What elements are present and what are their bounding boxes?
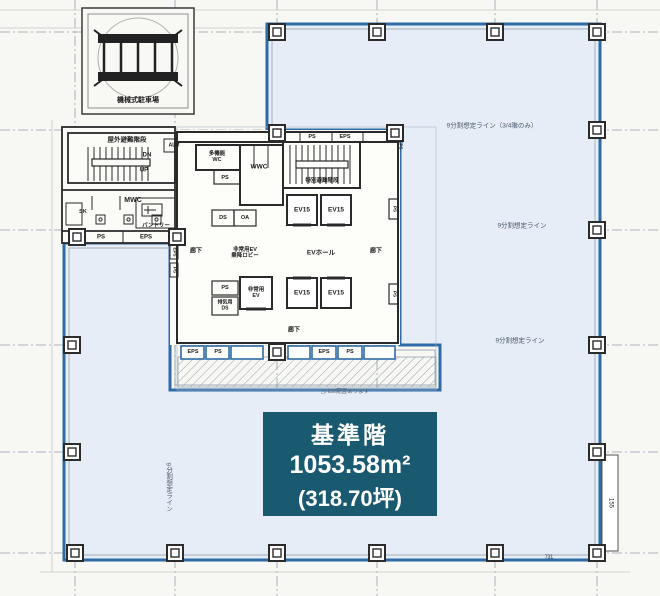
eps-right-top-label: EPS bbox=[398, 140, 403, 149]
stair-dn-label: DN bbox=[143, 153, 152, 160]
eps-bottomrow-label-2: EPS bbox=[318, 349, 329, 355]
hatch-note: △HD2配置あります bbox=[321, 389, 369, 395]
hatch-band bbox=[178, 357, 436, 387]
ps-right-label-2: PS bbox=[392, 291, 397, 297]
mwc-label: MWC bbox=[124, 197, 142, 205]
emergency-ev-lobby-label: 非常用EV 乗降ロビー bbox=[231, 247, 259, 259]
sk-label: SK bbox=[79, 209, 87, 215]
corridor-label-right: 廊下 bbox=[370, 249, 382, 256]
multifunction-wc-label: 多機能 WC bbox=[209, 151, 226, 163]
ps-core-top-label: PS bbox=[308, 134, 315, 140]
area-info-box: 基準階 1053.58m² (318.70坪) bbox=[263, 412, 437, 516]
ps-mfwc-label: PS bbox=[221, 175, 228, 181]
emergency-ev-label: 非常用 EV bbox=[248, 287, 265, 299]
partition-line-label-3: 9分割想定ライン bbox=[495, 337, 544, 344]
oa-label: OA bbox=[241, 215, 249, 221]
ps-west-label: PS bbox=[172, 267, 177, 273]
core-walls bbox=[170, 132, 398, 343]
eps-annex-label: EPS bbox=[140, 235, 152, 242]
ps-annex-label: PS bbox=[97, 235, 105, 242]
ps-right-label-1: PS bbox=[392, 206, 397, 212]
ev15-label-4: EV15 bbox=[328, 289, 344, 296]
parking-label: 機械式駐車場 bbox=[117, 97, 159, 105]
corridor-label-bottom: 廊下 bbox=[288, 328, 300, 335]
ps-midleft-label: PS bbox=[221, 285, 228, 291]
outdoor-stair-label: 屋外避難階段 bbox=[108, 136, 147, 143]
ev15-label-1: EV15 bbox=[294, 206, 310, 213]
corridor-label-left: 廊下 bbox=[190, 249, 202, 256]
special-stair-label: 特別避難階段 bbox=[305, 178, 338, 184]
wwc-label: WWC bbox=[251, 163, 268, 170]
floor-title: 基準階 bbox=[311, 416, 389, 450]
eps-bottomrow-label-1: EPS bbox=[187, 349, 198, 355]
partition-line-label-vertical: 9分割想定ライン bbox=[164, 462, 171, 511]
floor-plan: 機械式駐車場 屋外避難階段 DN UP ALM MWC SK パントリー PS … bbox=[0, 0, 660, 596]
stair-up-label: UP bbox=[140, 168, 148, 175]
partition-line-label-1: 9分割想定ライン（3/4階のみ） bbox=[447, 122, 538, 129]
ps-bottomrow-label-1: PS bbox=[214, 349, 221, 355]
ps-bottomrow-label-2: PS bbox=[346, 349, 353, 355]
dimension-bottom: 731 bbox=[545, 555, 553, 561]
dimension-right: 155 bbox=[607, 498, 614, 508]
floor-area-tsubo: (318.70坪) bbox=[298, 481, 402, 513]
floor-area-m2: 1053.58m² bbox=[290, 451, 411, 480]
ev-hall-label: EVホール bbox=[307, 249, 335, 256]
exhaust-ds-label: 排気用 DS bbox=[217, 301, 232, 312]
eps-west-label: EPS bbox=[172, 247, 177, 256]
ev15-label-2: EV15 bbox=[328, 206, 344, 213]
pantry-label: パントリー bbox=[142, 223, 170, 229]
ds-label: DS bbox=[219, 215, 227, 221]
ev15-label-3: EV15 bbox=[294, 289, 310, 296]
eps-core-top-label: EPS bbox=[339, 134, 350, 140]
partition-line-label-2: 9分割想定ライン bbox=[497, 222, 546, 229]
alm-label: ALM bbox=[169, 143, 180, 149]
